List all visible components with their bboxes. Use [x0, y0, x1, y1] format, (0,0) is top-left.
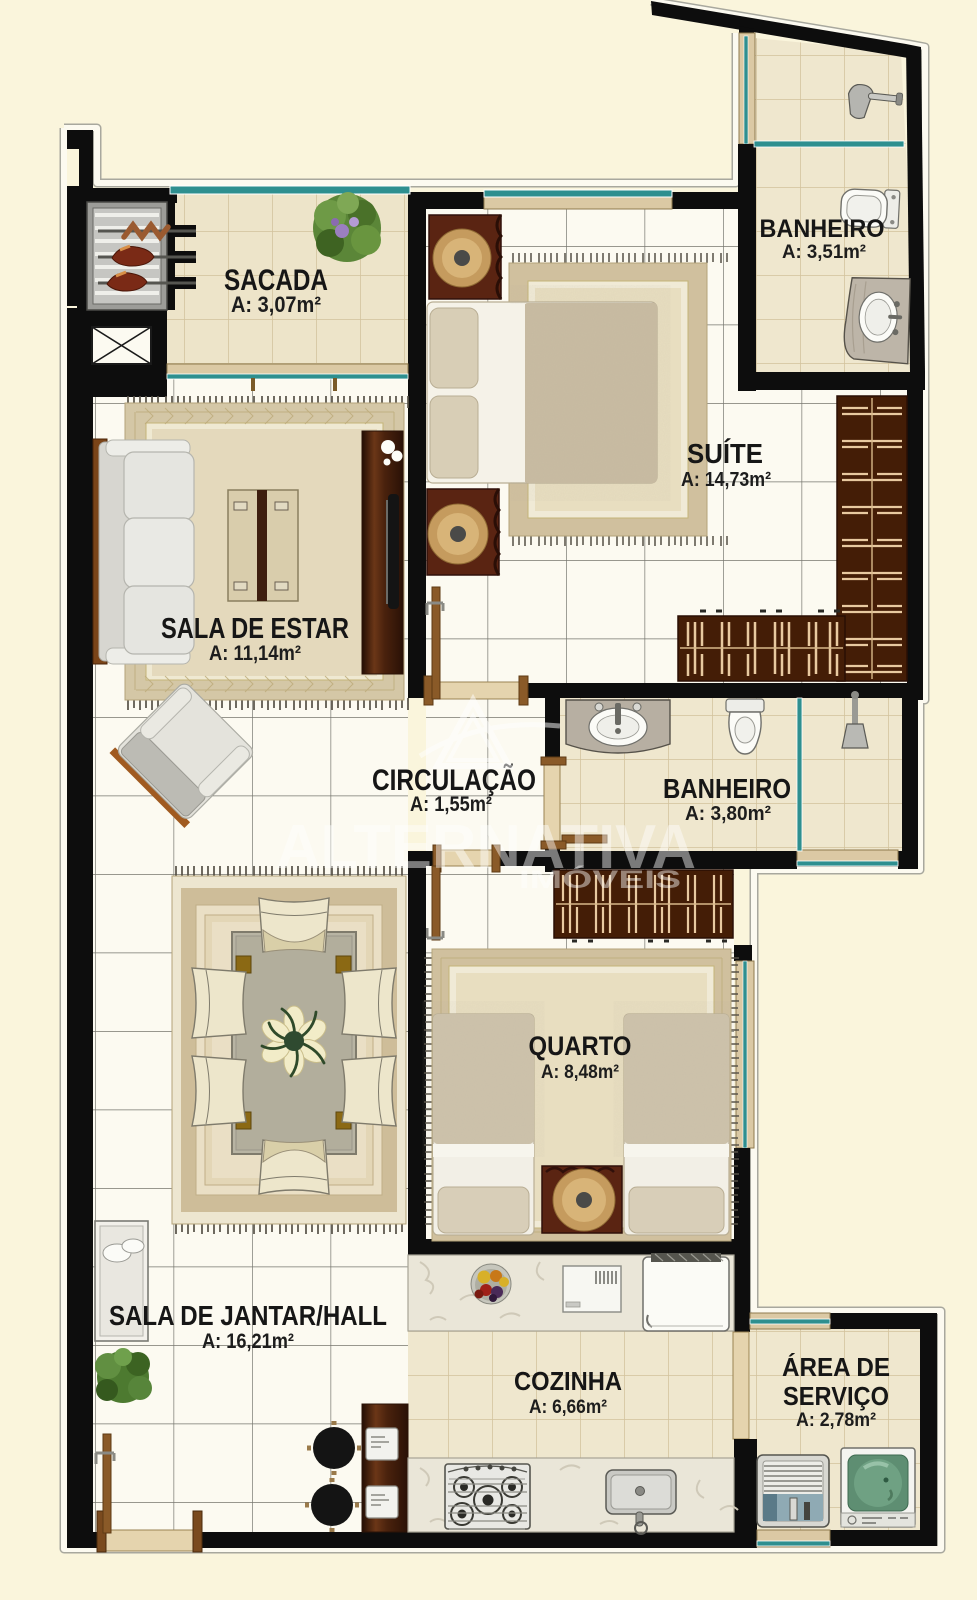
svg-text:A: 8,48m²: A: 8,48m²	[541, 1062, 619, 1083]
svg-text:BANHEIRO: BANHEIRO	[663, 773, 791, 804]
svg-text:SALA DE JANTAR/HALL: SALA DE JANTAR/HALL	[109, 1300, 387, 1331]
svg-text:A: 3,80m²: A: 3,80m²	[685, 803, 771, 825]
svg-text:A: 16,21m²: A: 16,21m²	[202, 1330, 294, 1353]
svg-text:COZINHA: COZINHA	[514, 1366, 622, 1396]
svg-text:IMÓVEIS: IMÓVEIS	[519, 864, 681, 894]
svg-text:A: 2,78m²: A: 2,78m²	[796, 1410, 876, 1431]
svg-text:ÁREA DE: ÁREA DE	[782, 1352, 890, 1382]
svg-text:SERVIÇO: SERVIÇO	[783, 1381, 889, 1411]
svg-text:BANHEIRO: BANHEIRO	[760, 215, 885, 243]
svg-text:SALA DE ESTAR: SALA DE ESTAR	[161, 613, 349, 645]
svg-text:A: 3,07m²: A: 3,07m²	[231, 292, 321, 317]
svg-text:A: 14,73m²: A: 14,73m²	[681, 469, 771, 491]
svg-text:A: 3,51m²: A: 3,51m²	[782, 242, 866, 263]
svg-text:QUARTO: QUARTO	[529, 1031, 632, 1061]
svg-text:SUÍTE: SUÍTE	[687, 438, 763, 469]
svg-text:A: 11,14m²: A: 11,14m²	[209, 642, 301, 665]
svg-text:A: 6,66m²: A: 6,66m²	[529, 1397, 607, 1418]
